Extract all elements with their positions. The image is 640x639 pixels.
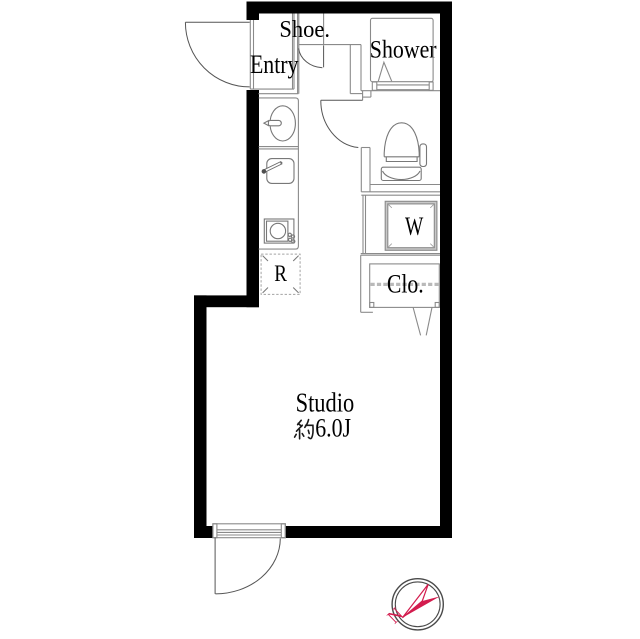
svg-text:Clo.: Clo. <box>387 270 424 299</box>
svg-text:R: R <box>274 261 287 286</box>
svg-text:W: W <box>405 212 424 241</box>
svg-text:6.0J: 6.0J <box>315 413 351 442</box>
svg-text:Shoe.: Shoe. <box>279 16 330 43</box>
svg-text:Shower: Shower <box>370 35 437 64</box>
svg-text:Entry: Entry <box>250 50 299 79</box>
